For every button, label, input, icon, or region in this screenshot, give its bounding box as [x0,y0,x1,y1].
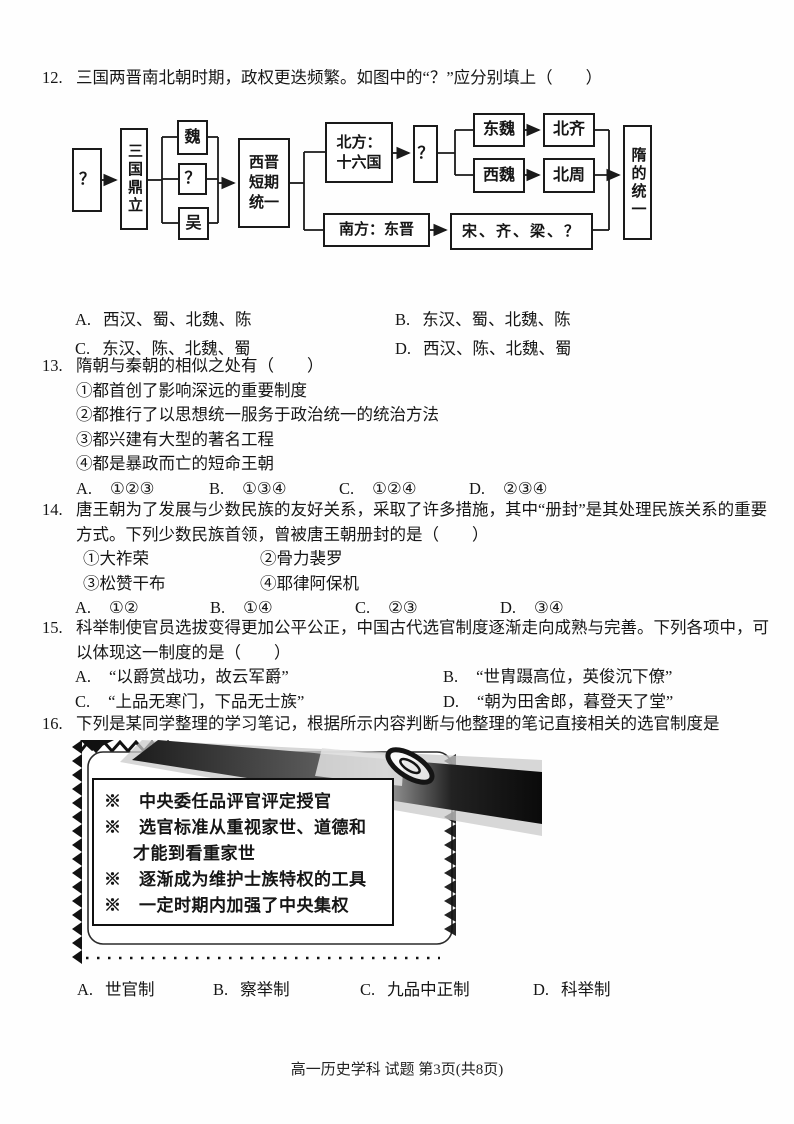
notebook-line: ※ 一定时期内加强了中央集权 [104,893,386,919]
option-a: A.“以爵赏战功，故云军爵” [75,665,443,690]
box-question-mid: ？ [178,163,207,195]
list-item: ③松赞干布 [83,572,260,597]
box-northern-qi: 北齐 [543,113,595,147]
box-song-qi-liang: 宋、齐、梁、？ [450,213,593,250]
box-sui-unification: 隋的统一 [623,125,652,240]
question-stem: 三国两晋南北朝时期，政权更迭频繁。如图中的“？”应分别填上（ ） [76,66,772,91]
option-b: B.东汉、蜀、北魏、陈 [395,308,572,333]
question-stem: 下列是某同学整理的学习笔记，根据所示内容判断与他整理的笔记直接相关的选官制度是 [76,712,772,737]
question-13: 13. 隋朝与秦朝的相似之处有（ ） ①都首创了影响深远的重要制度 ②都推行了以… [42,354,772,501]
question-number: 12. [42,66,76,91]
notebook-line: ※ 选官标准从重视家世、道德和 [104,815,386,841]
option-d: D.“朝为田舍郎，暮登天了堂” [443,690,772,715]
list-item: ①大祚荣 [83,547,260,572]
box-question-right: ？ [413,125,438,183]
dynasty-flowchart: ？ 三国鼎立 魏 ？ 吴 西晋 短期 统一 北方： 十六国 ？ 东魏 北齐 西魏… [66,112,666,262]
question-16: 16. 下列是某同学整理的学习笔记，根据所示内容判断与他整理的笔记直接相关的选官… [42,712,772,737]
question-16-options: A.世官制 B.察举制 C.九品中正制 D.科举制 [77,978,611,1003]
list-item: ②骨力裴罗 [260,547,772,572]
list-item: ④耶律阿保机 [260,572,772,597]
notebook-line: ※ 中央委任品评官评定授官 [104,789,386,815]
question-14-items: ①大祚荣 ②骨力裴罗 ③松赞干布 ④耶律阿保机 [83,547,772,596]
box-wu: 吴 [178,207,209,240]
question-12: 12. 三国两晋南北朝时期，政权更迭频繁。如图中的“？”应分别填上（ ） [42,66,772,91]
box-western-jin: 西晋 短期 统一 [238,138,290,228]
option-a: A.世官制 [77,978,213,1003]
notebook-text-panel: ※ 中央委任品评官评定授官 ※ 选官标准从重视家世、道德和 才能到看重家世 ※ … [92,778,394,926]
exam-page: 12. 三国两晋南北朝时期，政权更迭频繁。如图中的“？”应分别填上（ ） [0,0,794,1124]
question-stem: 唐王朝为了发展与少数民族的友好关系，采取了许多措施，其中“册封”是其处理民族关系… [76,498,772,547]
question-number: 15. [42,616,76,641]
box-north-sixteen: 北方： 十六国 [325,122,393,183]
question-stem: 科举制使官员选拔变得更加公平公正，中国古代选官制度逐渐走向成熟与完善。下列各项中… [76,616,772,665]
box-eastern-wei: 东魏 [473,113,525,147]
notebook-line: 才能到看重家世 [104,841,386,867]
page-footer: 高一历史学科 试题 第3页(共8页) [0,1058,794,1083]
list-item: ④都是暴政而亡的短命王朝 [76,452,772,477]
question-14: 14. 唐王朝为了发展与少数民族的友好关系，采取了许多措施，其中“册封”是其处理… [42,498,772,621]
question-number: 13. [42,354,76,379]
list-item: ②都推行了以思想统一服务于政治统一的统治方法 [76,403,772,428]
box-wei: 魏 [177,120,208,155]
option-a: A.西汉、蜀、北魏、陈 [75,308,395,333]
option-b: B.察举制 [213,978,360,1003]
notebook-image: ※ 中央委任品评官评定授官 ※ 选官标准从重视家世、道德和 才能到看重家世 ※ … [72,740,572,968]
question-number: 16. [42,712,76,737]
option-c: C.“上品无寒门，下品无士族” [75,690,443,715]
question-15-options: A.“以爵赏战功，故云军爵” B.“世胄蹑高位，英俊沉下僚” C.“上品无寒门，… [75,665,772,714]
list-item: ③都兴建有大型的著名工程 [76,428,772,453]
box-three-kingdoms: 三国鼎立 [120,128,148,230]
option-c: C.九品中正制 [360,978,533,1003]
box-question-left: ？ [72,148,102,212]
question-15: 15. 科举制使官员选拔变得更加公平公正，中国古代选官制度逐渐走向成熟与完善。下… [42,616,772,714]
box-western-wei: 西魏 [473,158,525,193]
option-b: B.“世胄蹑高位，英俊沉下僚” [443,665,772,690]
list-item: ①都首创了影响深远的重要制度 [76,379,772,404]
option-d: D.科举制 [533,978,611,1003]
question-stem: 隋朝与秦朝的相似之处有（ ） [76,354,772,379]
question-number: 14. [42,498,76,523]
notebook-line: ※ 逐渐成为维护士族特权的工具 [104,867,386,893]
box-south-eastern-jin: 南方：东晋 [323,213,430,247]
box-northern-zhou: 北周 [543,158,595,193]
